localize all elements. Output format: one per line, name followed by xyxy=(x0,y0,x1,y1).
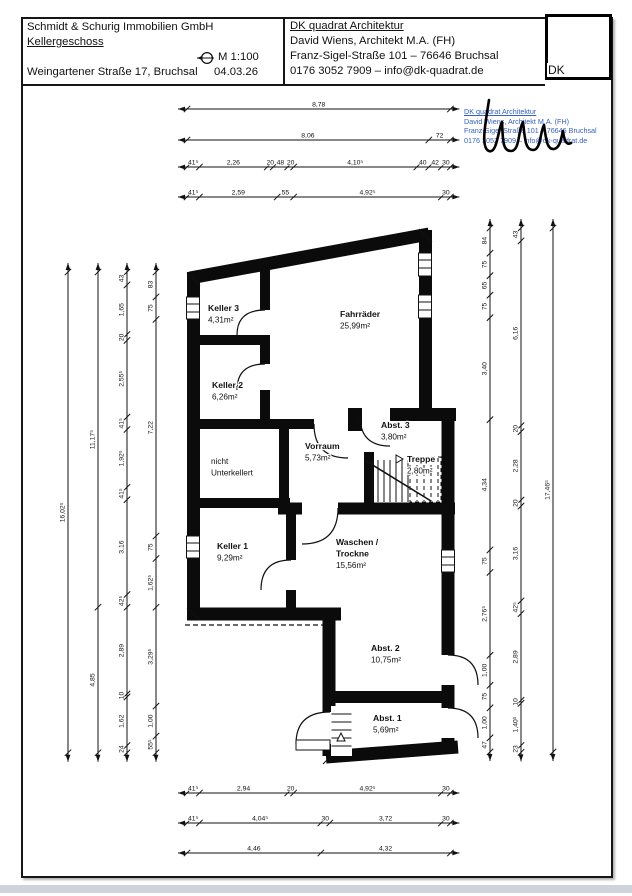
sheet: Schmidt & Schurig Immobilien GmbH Keller… xyxy=(0,0,632,896)
plan-date: 04.03.26 xyxy=(214,66,258,78)
compass-icon xyxy=(196,51,215,65)
stamp-initials: DK xyxy=(547,63,566,77)
stamp-line: 0176 3052 7909 – info@dk-quadrat.de xyxy=(464,136,597,146)
architect-street: Franz-Sigel-Straße 101 – 76646 Bruchsal xyxy=(290,50,498,62)
architect-firm: DK quadrat Architektur xyxy=(290,20,404,32)
architect-stamp: DK quadrat Architektur David Wiens, Arch… xyxy=(464,107,597,145)
floor-title: Kellergeschoss xyxy=(27,36,104,48)
title-block-bottom-line xyxy=(21,84,545,86)
footer-bar xyxy=(0,885,632,893)
stamp-line: David Wiens, Architekt M.A. (FH) xyxy=(464,117,597,127)
project-address: Weingartener Straße 17, Bruchsal xyxy=(27,66,198,78)
client-name: Schmidt & Schurig Immobilien GmbH xyxy=(27,21,213,33)
title-block-divider xyxy=(283,17,285,84)
sheet-border xyxy=(21,17,613,878)
stamp-line: DK quadrat Architektur xyxy=(464,107,597,117)
architect-name: David Wiens, Architekt M.A. (FH) xyxy=(290,35,455,47)
architect-contact: 0176 3052 7909 – info@dk-quadrat.de xyxy=(290,65,484,77)
scale-label: M 1:100 xyxy=(218,51,259,63)
stamp-line: Franz-Sigel-Straße 101 – 76646 Bruchsal xyxy=(464,126,597,136)
